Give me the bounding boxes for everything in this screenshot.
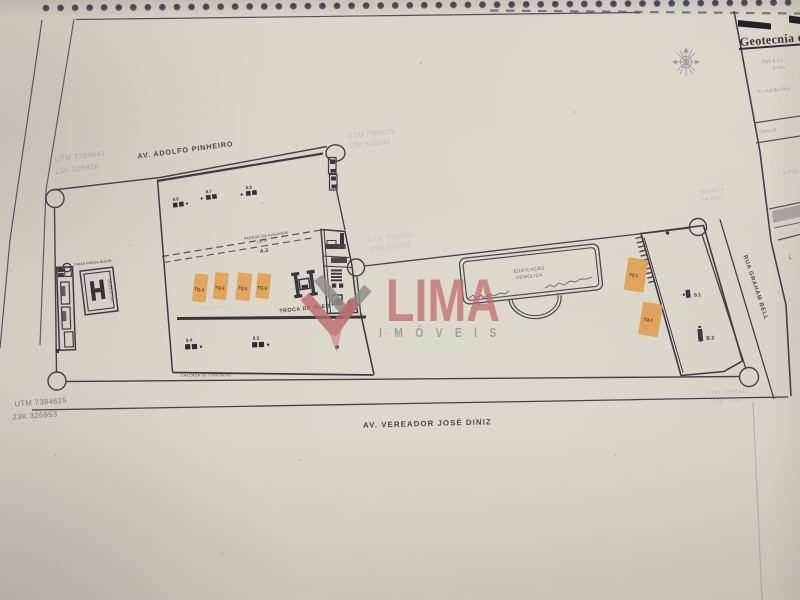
svg-text:+923 bat 1 4: +923 bat 1 4	[698, 187, 724, 195]
svg-text:4 mm: 4 mm	[773, 65, 786, 72]
svg-text:AV. ADOLFO PINHEIRO: AV. ADOLFO PINHEIRO	[137, 139, 234, 161]
svg-text:23K 326953: 23K 326953	[12, 410, 57, 422]
svg-text:AV. VEREADOR JOSÉ DINIZ: AV. VEREADOR JOSÉ DINIZ	[363, 417, 492, 429]
svg-text:8.6: 8.6	[172, 196, 179, 202]
svg-text:4.50 m: 4.50 m	[256, 239, 267, 244]
svg-text:t tanques subterr.: t tanques subterr.	[196, 303, 229, 311]
svg-text:8.4: 8.4	[186, 338, 193, 343]
svg-text:23K 3268: 23K 3268	[712, 397, 742, 406]
svg-text:23K 326849: 23K 326849	[349, 139, 390, 150]
svg-text:UTM 7384911: UTM 7384911	[706, 387, 750, 397]
svg-text:GRUPO M. GER.: GRUPO M. GER.	[107, 278, 115, 303]
svg-text:Av. Adolfo Pinh: Av. Adolfo Pinh	[757, 86, 791, 95]
svg-text:RUA GRAHAM BELL: RUA GRAHAM BELL	[741, 254, 768, 321]
svg-text:B.2: B.2	[706, 335, 715, 342]
svg-text:8.7: 8.7	[205, 188, 212, 194]
svg-text:CALÇADA DE CONCRETO: CALÇADA DE CONCRETO	[181, 374, 232, 378]
svg-text:23K 32b+t: 23K 32b+t	[700, 195, 722, 202]
svg-text:LIMA: LIMA	[386, 267, 500, 334]
svg-text:8.8: 8.8	[245, 184, 252, 190]
svg-text:23K 326926: 23K 326926	[55, 161, 100, 176]
svg-text:UTM 7384625: UTM 7384625	[14, 396, 67, 409]
svg-text:I M Ó V E I S: I M Ó V E I S	[379, 325, 501, 340]
svg-text:Data 19.: Data 19.	[759, 127, 778, 135]
svg-text:L: L	[789, 254, 794, 261]
svg-text:8.3: 8.3	[253, 336, 260, 341]
svg-text:CAIXA FORÇA ELÉTR.: CAIXA FORÇA ELÉTR.	[74, 258, 113, 267]
svg-text:A.3: A.3	[259, 248, 268, 255]
svg-text:DEMOLIDA: DEMOLIDA	[516, 272, 543, 280]
svg-text:23K 326905: 23K 326905	[370, 242, 411, 253]
svg-text:1:750: 1:750	[783, 169, 799, 177]
svg-text:9.1: 9.1	[694, 292, 702, 299]
svg-text:UTM 7384641: UTM 7384641	[54, 148, 106, 164]
